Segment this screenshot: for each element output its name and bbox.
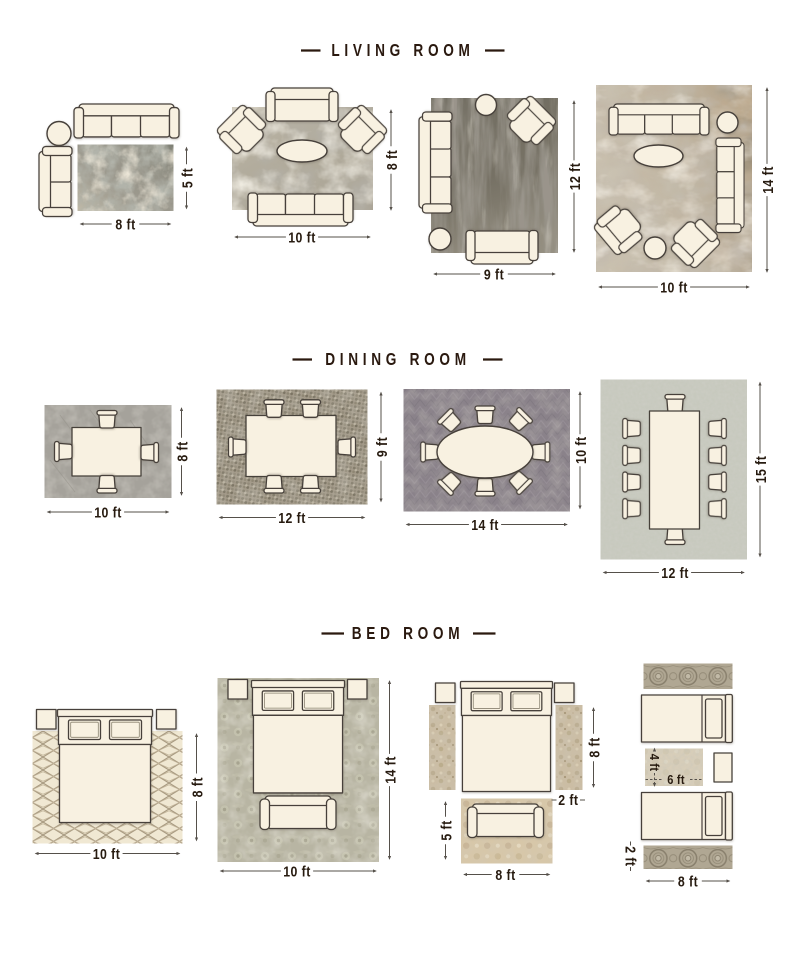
svg-text:2 ft: 2 ft [558, 792, 578, 808]
svg-text:DINING ROOM: DINING ROOM [325, 351, 470, 370]
svg-text:8 ft: 8 ft [174, 441, 190, 461]
svg-text:8 ft: 8 ft [189, 777, 205, 797]
svg-text:14 ft: 14 ft [760, 166, 776, 193]
svg-text:2 ft: 2 ft [622, 846, 638, 866]
svg-text:10 ft: 10 ft [93, 846, 120, 862]
svg-text:8 ft: 8 ft [678, 873, 698, 889]
svg-text:12 ft: 12 ft [278, 510, 305, 526]
svg-text:6 ft: 6 ft [667, 772, 685, 787]
svg-text:8 ft: 8 ft [495, 867, 515, 883]
svg-text:8 ft: 8 ft [384, 150, 400, 170]
svg-text:10 ft: 10 ft [288, 229, 315, 245]
svg-text:10 ft: 10 ft [660, 279, 687, 295]
svg-text:14 ft: 14 ft [471, 517, 498, 533]
svg-text:4 ft: 4 ft [647, 754, 662, 772]
svg-text:12 ft: 12 ft [661, 565, 688, 581]
svg-text:14 ft: 14 ft [382, 756, 398, 783]
svg-text:10 ft: 10 ft [573, 436, 589, 463]
svg-text:8 ft: 8 ft [115, 216, 135, 232]
svg-text:9 ft: 9 ft [484, 266, 504, 282]
svg-text:12 ft: 12 ft [567, 163, 583, 190]
svg-text:10 ft: 10 ft [283, 863, 310, 879]
svg-text:5 ft: 5 ft [438, 820, 454, 840]
svg-text:8 ft: 8 ft [586, 737, 602, 757]
svg-text:15 ft: 15 ft [753, 456, 769, 483]
svg-text:9 ft: 9 ft [374, 437, 390, 457]
svg-text:BED ROOM: BED ROOM [352, 625, 464, 644]
svg-text:10 ft: 10 ft [94, 504, 121, 520]
svg-text:LIVING ROOM: LIVING ROOM [331, 42, 474, 61]
svg-text:5 ft: 5 ft [179, 168, 195, 188]
